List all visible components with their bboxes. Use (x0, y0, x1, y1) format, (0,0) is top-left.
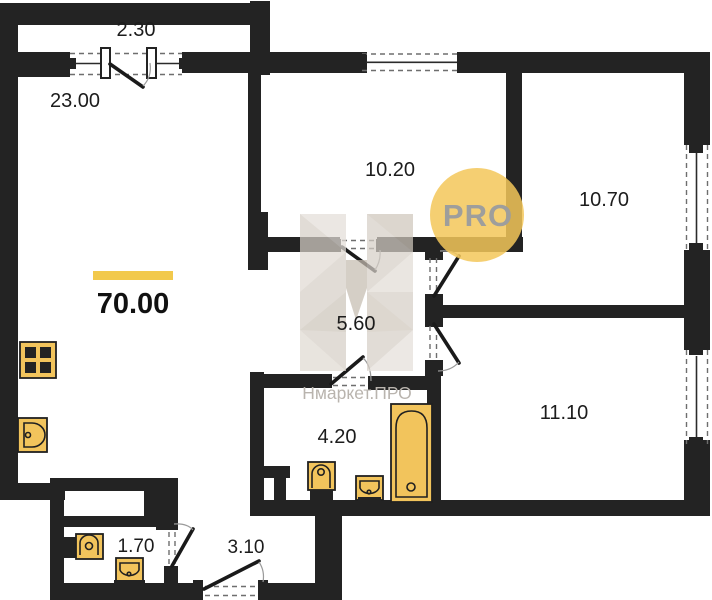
wall-segment (425, 294, 443, 327)
wall-segment (18, 52, 70, 77)
wall-segment (164, 566, 178, 585)
total-area-block: 70.00 (93, 271, 173, 320)
stove-burner (25, 362, 36, 373)
brand-watermark-text: Нмаркет.ПРО (302, 383, 412, 403)
stove-burner (25, 347, 36, 358)
washing-machine-icon (64, 534, 103, 559)
sink-base (114, 580, 145, 588)
wall-segment (250, 500, 710, 516)
label-hallway-area: 3.10 (228, 537, 265, 558)
washer-base (64, 537, 77, 558)
pro-badge: PRO (430, 168, 524, 262)
bathroom-sink-icon (356, 476, 383, 503)
wall-segment (0, 3, 18, 500)
window-jamb (457, 54, 465, 68)
duct-shaft-wall (274, 478, 286, 504)
label-balcony-area: 2.30 (117, 19, 156, 41)
toilet-base (310, 490, 333, 502)
pro-badge-text: PRO (443, 198, 513, 233)
floorplan-canvas: PRO Нмаркет.ПРО 2.30 23.00 10.20 10.70 5… (0, 0, 712, 600)
niche-wall (64, 516, 156, 527)
wall-segment (250, 372, 264, 516)
label-corridor-area: 5.60 (337, 313, 376, 335)
bathtub-icon (391, 404, 432, 502)
door-jamb (193, 580, 203, 600)
window-jamb (689, 144, 703, 153)
label-bathroom-area: 4.20 (318, 426, 357, 448)
wall-segment (156, 478, 178, 530)
wall-segment (248, 73, 261, 215)
door-jamb (258, 580, 268, 600)
label-room-bottom-right-area: 11.10 (540, 402, 589, 424)
window-jamb (358, 54, 366, 68)
wc-sink-icon (114, 558, 145, 588)
toilet-icon (308, 462, 335, 502)
kitchen-sink-icon (18, 418, 47, 452)
label-room-top-middle-area: 10.20 (365, 159, 415, 181)
wall-segment (182, 52, 367, 73)
floorplan-drawing: PRO Нмаркет.ПРО 2.30 23.00 10.20 10.70 5… (0, 0, 712, 600)
niche-wall (144, 489, 156, 527)
label-living-kitchen-area: 23.00 (50, 90, 100, 112)
window-jamb (689, 346, 703, 355)
window-jamb (689, 243, 703, 252)
label-room-top-right-area: 10.70 (579, 189, 629, 211)
stove-icon (20, 342, 56, 378)
wall-segment (440, 305, 686, 318)
wall-segment (425, 248, 443, 260)
total-area-accent-bar (93, 271, 173, 280)
sink-base (358, 497, 381, 503)
stove-burner (40, 347, 51, 358)
stove-burner (40, 362, 51, 373)
window-pane (147, 48, 156, 78)
duct-shaft-wall (262, 466, 290, 478)
total-area-label: 70.00 (97, 288, 170, 320)
label-wc-area: 1.70 (118, 536, 155, 557)
wall-segment (248, 212, 268, 270)
wall-segment (684, 250, 710, 350)
window-jamb (179, 58, 185, 69)
wall-segment (684, 73, 710, 145)
wall-segment (315, 516, 342, 600)
window-jamb (689, 437, 703, 446)
wall-segment (457, 52, 710, 73)
window-jamb (69, 58, 76, 69)
